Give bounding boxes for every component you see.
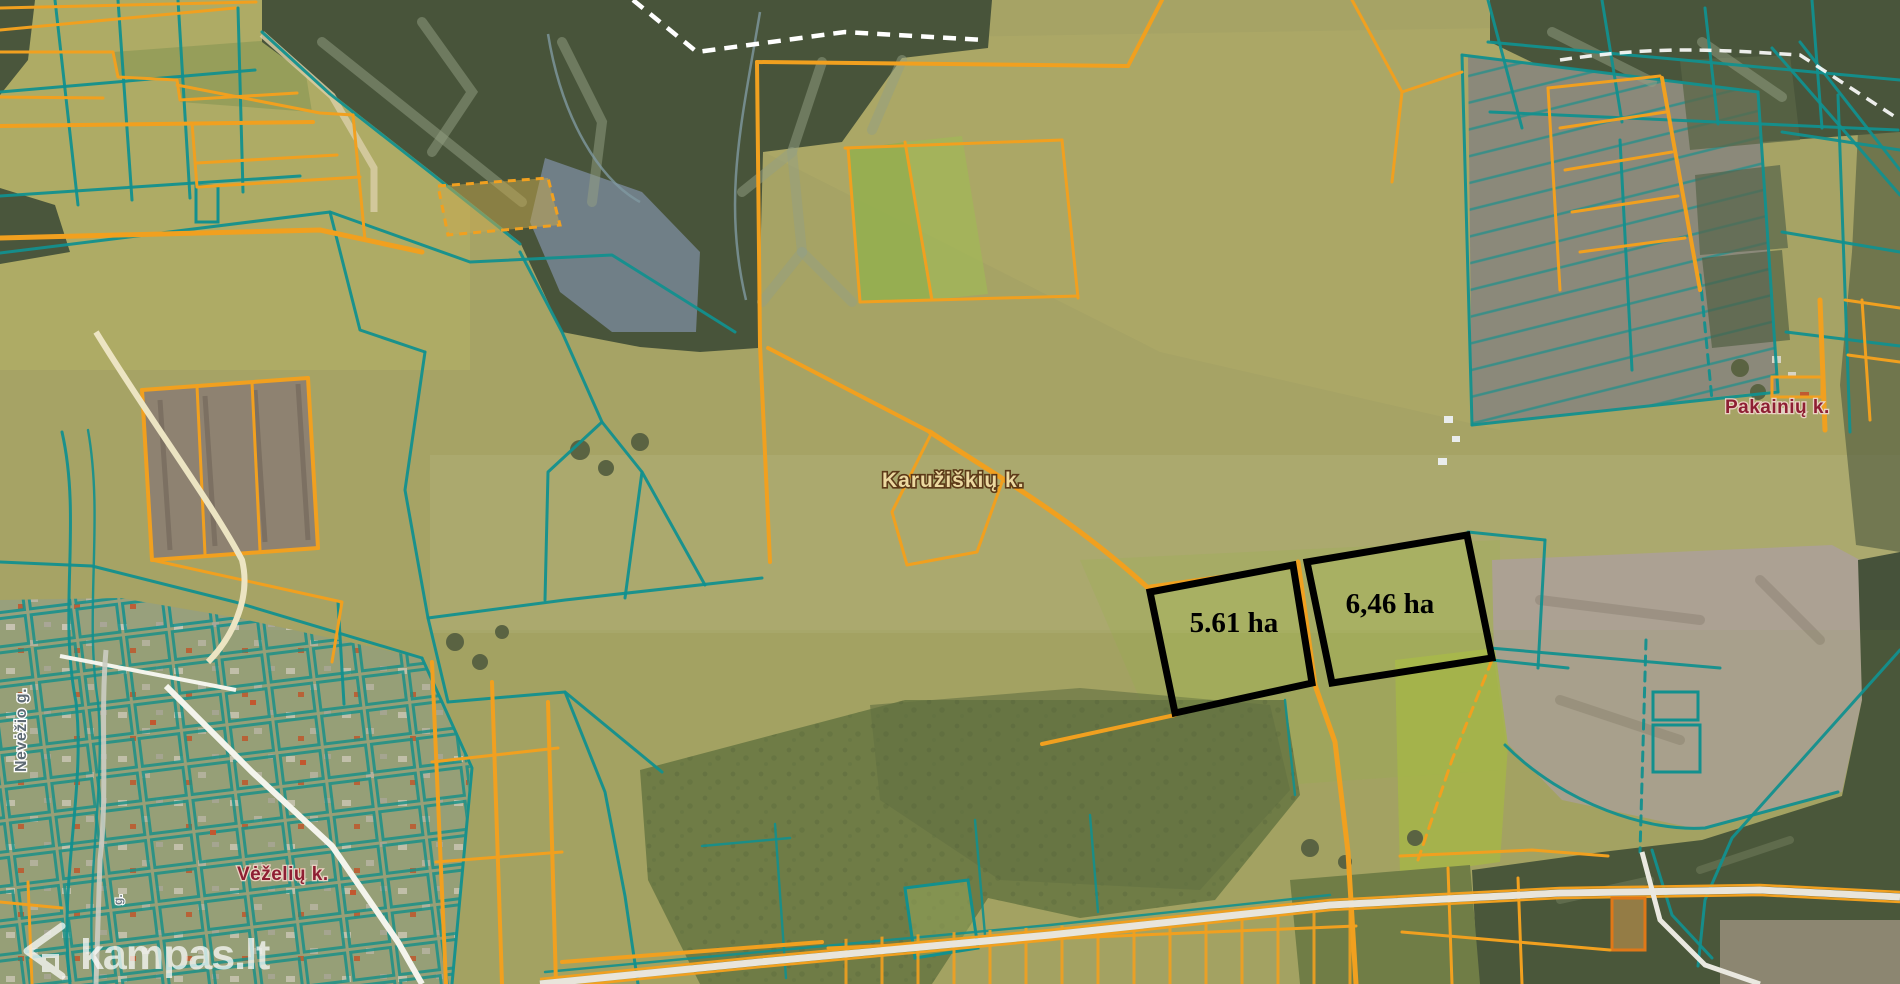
aerial-terrain [0, 0, 1900, 984]
street-label-nevezio: Nevėžio g. [13, 688, 30, 772]
village-label-karuziskiu: Karužiškių k. [882, 469, 1025, 492]
parcel-outline-5-61-ha [1150, 565, 1312, 713]
listing-map-image: 5.61 ha 6,46 ha Karužiškių k. Pakainių k… [0, 0, 1900, 984]
parcel-area-label-2: 6,46 ha [1346, 588, 1435, 620]
parcel-area-label-1: 5.61 ha [1190, 607, 1279, 639]
map-canvas: 5.61 ha 6,46 ha Karužiškių k. Pakainių k… [0, 0, 1900, 984]
village-label-vezeliu: Vėželių k. [237, 864, 329, 885]
street-label-small: g. [111, 894, 125, 905]
village-label-pakainiu: Pakainių k. [1725, 397, 1830, 418]
watermark-text: kampas.lt [80, 931, 270, 979]
